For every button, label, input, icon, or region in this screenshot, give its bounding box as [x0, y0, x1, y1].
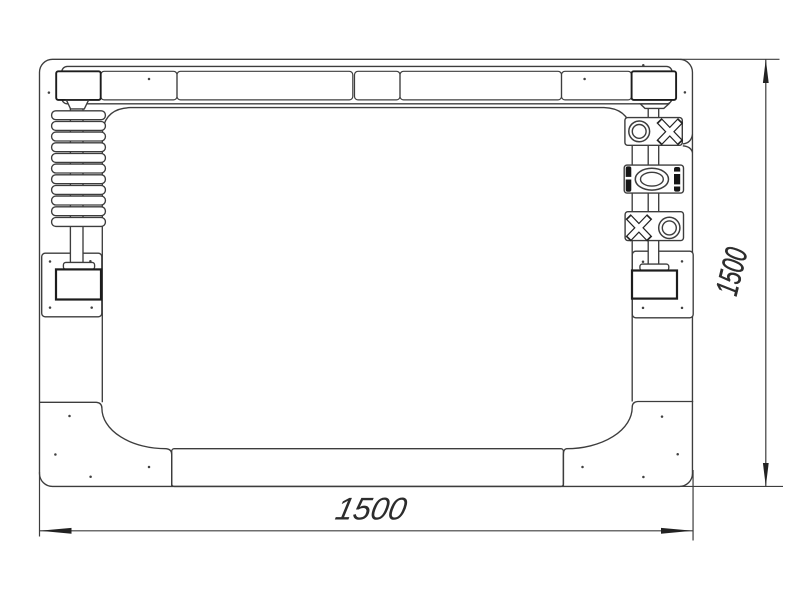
svg-text:1500: 1500: [333, 491, 411, 527]
